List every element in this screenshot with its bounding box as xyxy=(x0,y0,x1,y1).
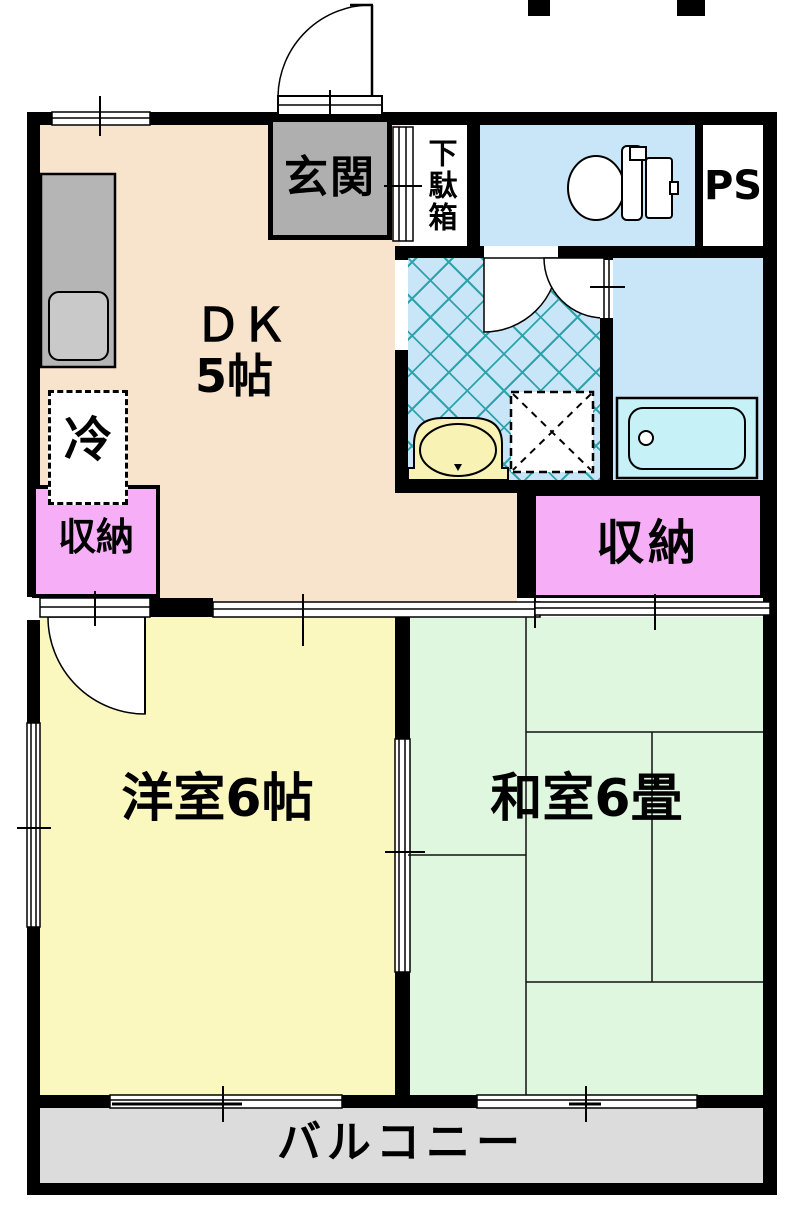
wall-balcony-row-d xyxy=(697,1095,763,1108)
top-mark-left xyxy=(528,0,550,16)
wall-balcony-row-a xyxy=(40,1095,110,1108)
refrigerator-label: 冷 xyxy=(48,390,128,490)
washroom-floor xyxy=(408,258,600,480)
dk-floor-nook xyxy=(400,485,517,602)
dk-label-line1: ＤＫ xyxy=(195,300,287,351)
wall-under-washroom xyxy=(395,480,763,493)
wall-left xyxy=(27,112,40,1195)
wall-toilet-right xyxy=(695,125,703,246)
genkan-label: 玄関 xyxy=(268,117,392,240)
wall-right xyxy=(763,112,777,1195)
western-room-floor xyxy=(40,617,395,1095)
japanese-room-floor xyxy=(410,617,763,1095)
opening-left-wall xyxy=(27,597,40,620)
closet-left-label: 収納 xyxy=(32,485,160,590)
wall-bottom xyxy=(27,1183,777,1195)
dk-label-line2: 5帖 xyxy=(195,351,273,402)
closet-right-label: 収納 xyxy=(533,493,763,593)
wall-room-divider xyxy=(395,612,410,1095)
wall-wash-bath-divider xyxy=(600,246,613,480)
wall-closet-right-left-edge xyxy=(517,493,533,598)
balcony-label: バルコニー xyxy=(40,1108,763,1178)
wall-dk-bottom-segment xyxy=(150,598,213,617)
floor-plan: ＤＫ 5帖 玄関 下駄箱 PS 冷 収納 収納 洋室6帖 和室6畳 バルコニー xyxy=(0,0,800,1218)
wall-under-toilet-row xyxy=(400,246,763,258)
bathroom-floor xyxy=(613,258,763,480)
toilet-room-floor xyxy=(480,125,695,246)
pipe-space-label: PS xyxy=(703,125,763,246)
wall-balcony-row-c xyxy=(410,1095,477,1108)
wall-balcony-row-b xyxy=(342,1095,410,1108)
top-mark-right xyxy=(677,0,705,16)
opening-washroom-entry xyxy=(395,260,408,350)
wall-toilet-left xyxy=(467,125,480,246)
shoe-cabinet-label: 下駄箱 xyxy=(413,128,467,243)
japanese-room-label: 和室6畳 xyxy=(410,770,763,830)
dk-label: ＤＫ 5帖 xyxy=(195,296,325,406)
entrance-door-swing-icon xyxy=(278,5,382,121)
opening-toilet-door xyxy=(484,246,558,258)
wall-top xyxy=(27,112,777,125)
western-room-label: 洋室6帖 xyxy=(40,770,395,830)
